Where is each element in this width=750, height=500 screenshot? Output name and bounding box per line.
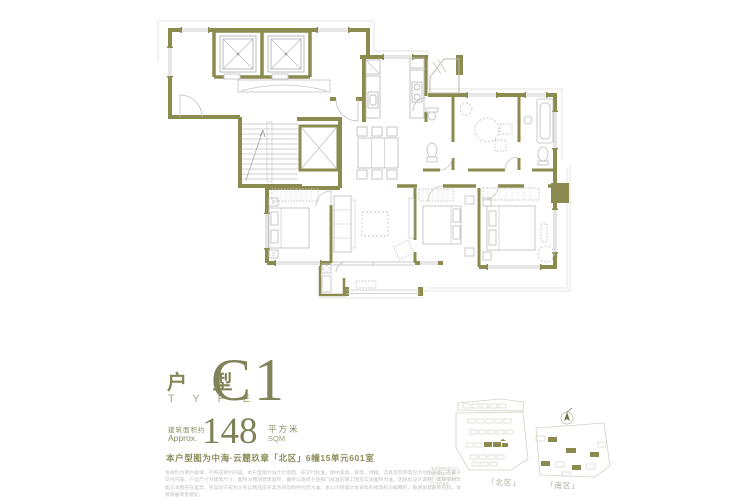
bathroom-a [426,108,438,162]
area-unit-en: SQM [268,434,285,443]
sitemap-south [536,408,610,477]
bathroom-b [524,99,553,165]
bedroom-sw [269,189,318,258]
wall-piers [344,55,569,296]
area-value: 148 [202,413,258,450]
kitchen [366,58,424,118]
floorplan-drawing [0,0,750,500]
bedroom-master [483,188,554,262]
highlighted-buildings-south [541,437,599,470]
living-room [334,196,414,260]
disclaimer-text: 本资料为要约邀请，不构成要约内容。本户型图为设计示意图，非交付标准，图中家具、家… [165,470,461,500]
sitemap-label-north: 「北区」 [487,477,521,488]
lobby-cabinet [238,80,330,92]
unit-code: C1 [211,350,287,410]
location-note: 本户型图为中海·云麓玖章「北区」6幢15单元601室 [166,452,374,464]
dining-table [357,127,398,179]
highlighted-building-north [484,439,508,447]
compass-icon [561,408,573,424]
sitemap-label-south: 「南区」 [546,480,580,491]
utility-room [430,59,459,93]
shaft [302,128,336,168]
staircase [242,122,298,182]
door-arcs [180,95,518,272]
walls [168,28,557,295]
study-room [460,103,512,151]
sitemap-north [456,399,528,470]
sitemap-note: 本示意图仅标示户型所在楼栋位置 不代表实际距离方位 仅供参考 [431,467,459,487]
area-label-en: Approx. [168,433,197,443]
bedroom-mid [419,189,474,256]
floorplan-page: { "title_block": { "unit_cn": "户 型", "un… [0,0,750,500]
